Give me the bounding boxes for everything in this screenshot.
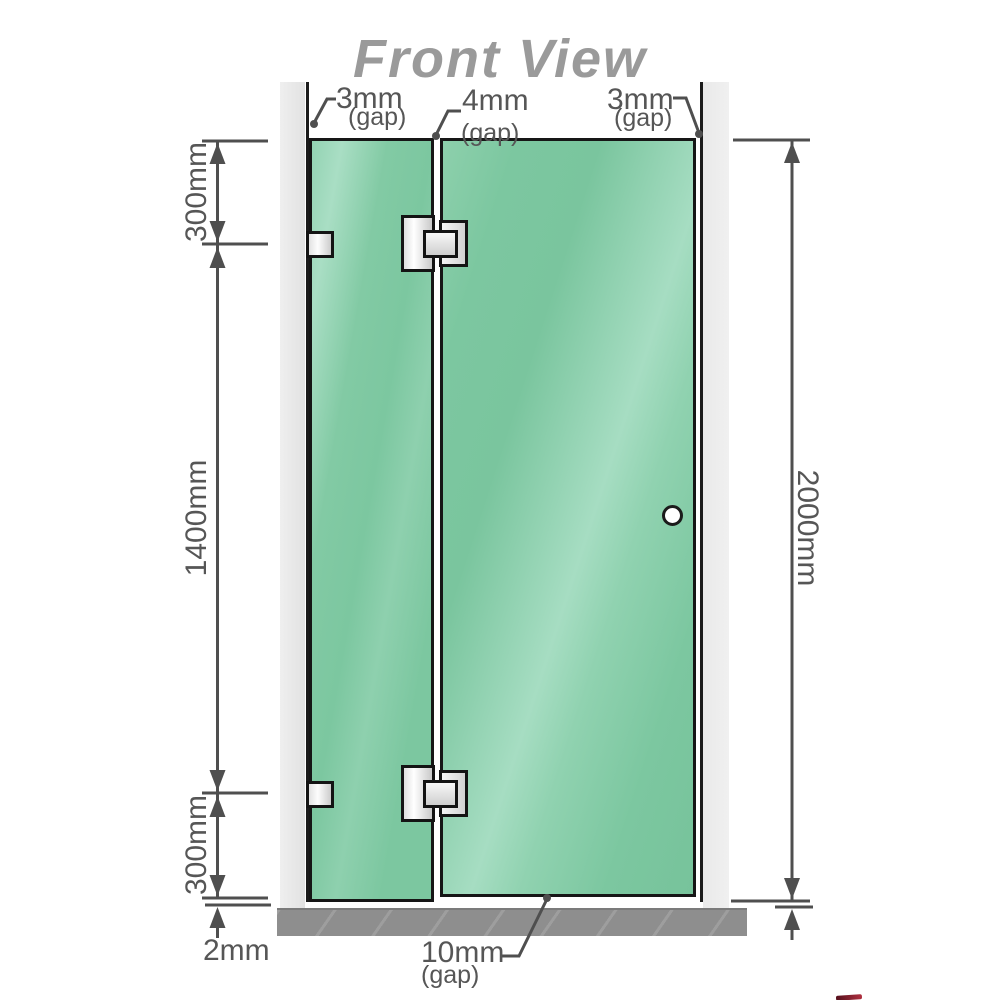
dim-label-1400: 1400mm bbox=[182, 460, 212, 577]
gap-label-right-unit: (gap) bbox=[614, 106, 672, 131]
gap-label-middle-value: 4mm bbox=[462, 86, 529, 116]
logo-fragment bbox=[836, 994, 862, 1000]
dim-label-300-top: 300mm bbox=[182, 142, 212, 242]
front-view-diagram: Front View bbox=[0, 0, 1000, 1000]
dim-label-2mm: 2mm bbox=[203, 936, 270, 966]
gap-leader-dots bbox=[310, 120, 703, 902]
dim-label-2000: 2000mm bbox=[792, 470, 822, 587]
dim-label-300-bottom: 300mm bbox=[182, 795, 212, 895]
bottom-gap-unit: (gap) bbox=[421, 963, 479, 988]
gap-label-left-unit: (gap) bbox=[348, 105, 406, 130]
dimension-lines bbox=[0, 0, 1000, 1000]
gap-leader-lines bbox=[314, 98, 699, 956]
hinge-knuckle bbox=[423, 780, 458, 808]
gap-label-middle-unit: (gap) bbox=[461, 121, 519, 146]
hinge-knuckle bbox=[423, 230, 458, 258]
